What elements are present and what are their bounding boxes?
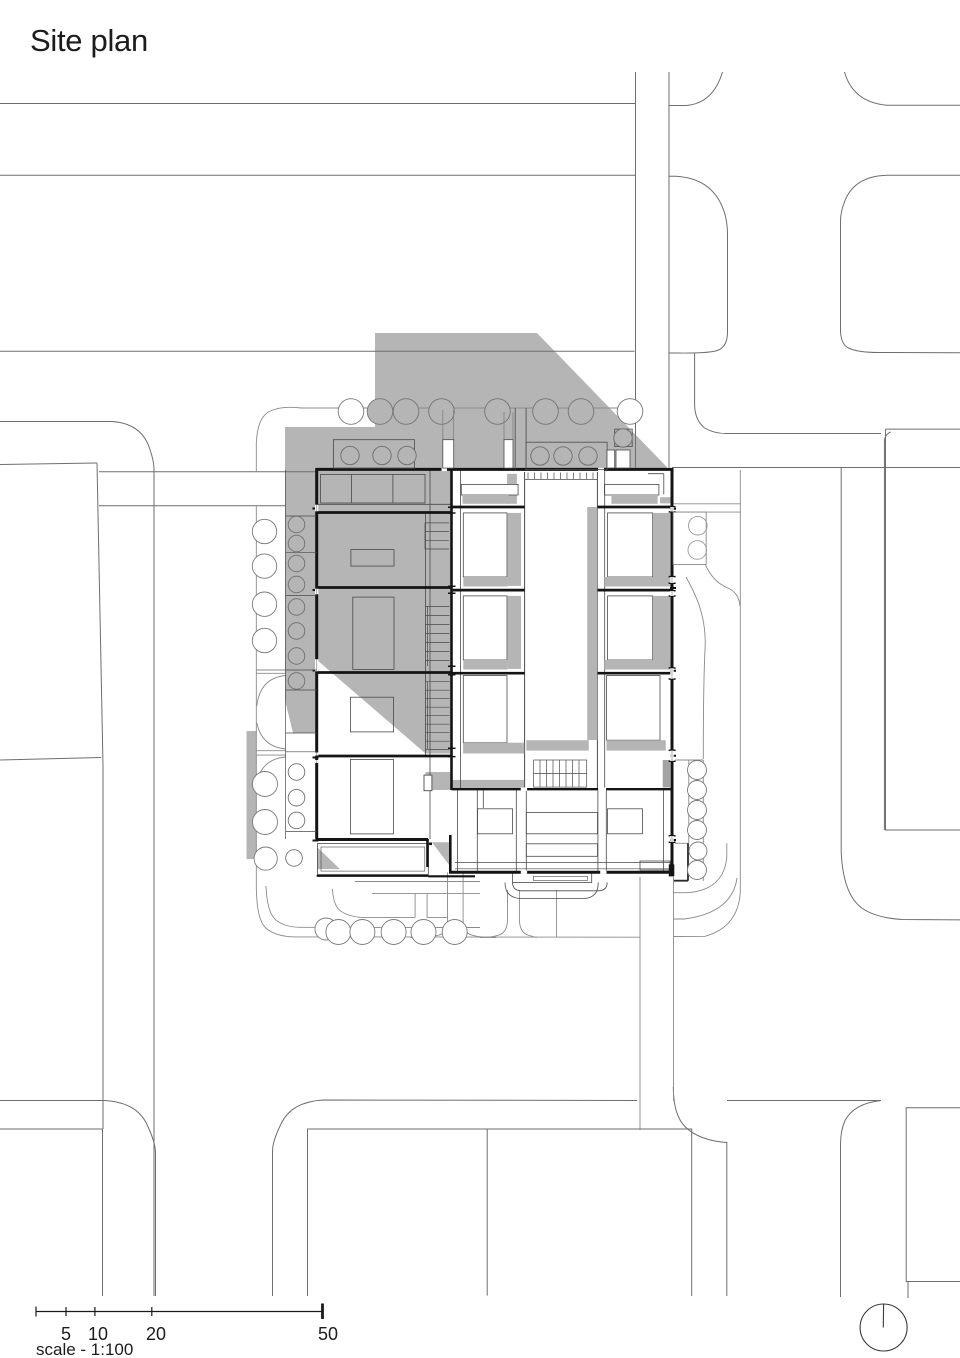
svg-text:scale - 1:100: scale - 1:100 [36, 1340, 133, 1358]
svg-text:50: 50 [318, 1324, 338, 1344]
svg-text:Site plan: Site plan [30, 23, 148, 58]
svg-text:20: 20 [146, 1324, 166, 1344]
